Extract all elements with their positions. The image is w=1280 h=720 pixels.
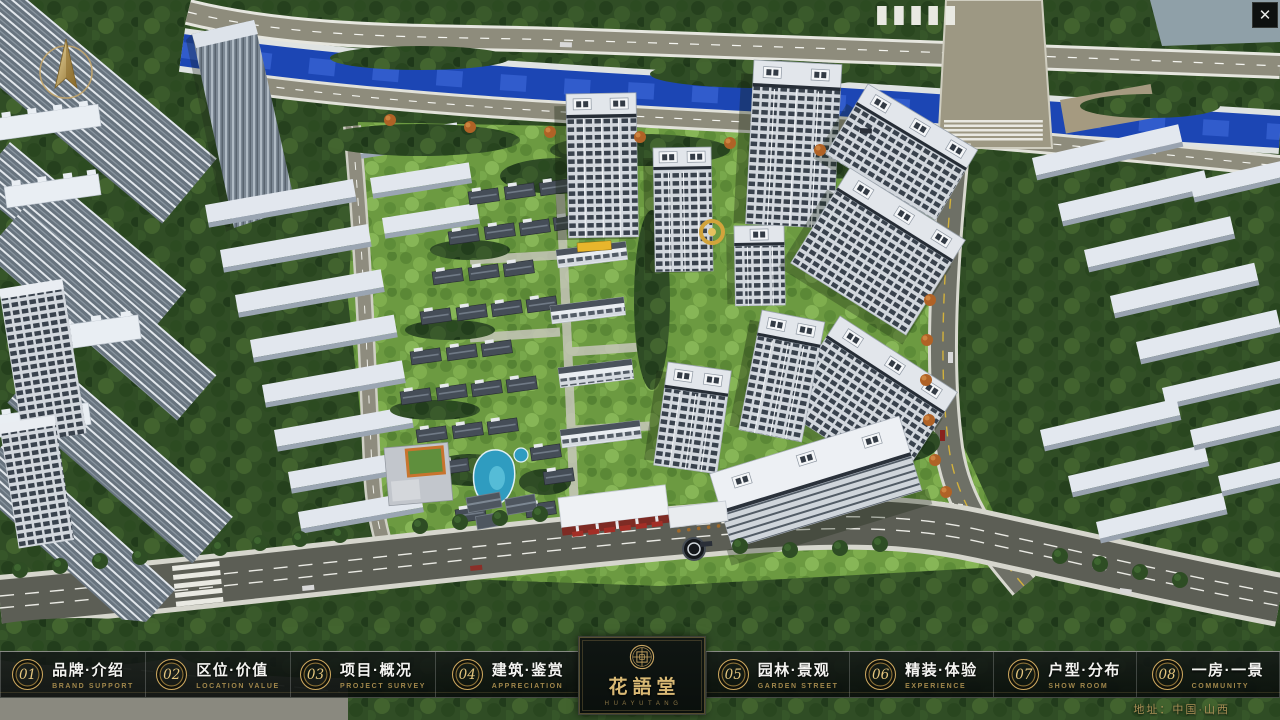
- nav-number-badge: 05: [718, 659, 749, 690]
- nav-number-badge: 06: [865, 659, 896, 690]
- nav-group-right: 05 园林·景观 GARDEN STREET 06 精装·体验 EXPERIEN…: [706, 652, 1280, 697]
- nav-number-badge: 01: [12, 659, 43, 690]
- nav-item-label: 精装·体验: [905, 659, 978, 680]
- project-logo[interactable]: 花語堂 H U A Y U T A N G: [578, 636, 706, 715]
- nav-item-sublabel: SHOW ROOM: [1048, 683, 1108, 690]
- nav-group-left: 01 品牌·介绍 BRAND SUPPORT 02 区位·价值 LOCATION…: [0, 652, 580, 697]
- presentation-window: ✕ 01 品牌·介绍 BRAND SUPPORT 02 区位·价值 LOCATI…: [0, 0, 1280, 720]
- nav-item-sublabel: BRAND SUPPORT: [52, 683, 134, 690]
- nav-item-sublabel: COMMUNITY: [1192, 683, 1250, 690]
- nav-item-label: 园林·景观: [758, 659, 831, 680]
- logo-subtitle: H U A Y U T A N G: [605, 701, 680, 707]
- nav-item-label: 户型·分布: [1048, 659, 1121, 680]
- nav-item-project-survey[interactable]: 03 项目·概况 PROJECT SURVEY: [290, 652, 435, 697]
- nav-item-sublabel: LOCATION VALUE: [196, 683, 280, 690]
- masterplan-render: [0, 0, 1280, 720]
- nav-item-label: 品牌·介绍: [52, 659, 125, 680]
- nav-item-label: 区位·价值: [196, 659, 269, 680]
- nav-item-sublabel: APPRECIATION: [492, 683, 564, 690]
- nav-number-badge: 02: [156, 659, 187, 690]
- nav-item-sublabel: GARDEN STREET: [758, 683, 839, 690]
- logo-title: 花語堂: [603, 672, 680, 699]
- nav-item-interior-experience[interactable]: 06 精装·体验 EXPERIENCE: [849, 652, 992, 697]
- nav-item-room-view[interactable]: 08 一房·一景 COMMUNITY: [1136, 652, 1280, 697]
- nav-item-location-value[interactable]: 02 区位·价值 LOCATION VALUE: [145, 652, 290, 697]
- nav-number-badge: 03: [300, 659, 331, 690]
- close-icon: ✕: [1259, 6, 1272, 24]
- nav-number-badge: 08: [1152, 659, 1183, 690]
- nav-item-architecture[interactable]: 04 建筑·鉴赏 APPRECIATION: [435, 652, 580, 697]
- nav-item-label: 一房·一景: [1192, 659, 1265, 680]
- nav-item-label: 项目·概况: [340, 659, 413, 680]
- nav-number-badge: 04: [452, 659, 483, 690]
- close-button[interactable]: ✕: [1252, 2, 1278, 28]
- nav-item-unit-distribution[interactable]: 07 户型·分布 SHOW ROOM: [993, 652, 1136, 697]
- seal-emblem-icon: [629, 644, 655, 670]
- nav-item-sublabel: EXPERIENCE: [905, 683, 966, 690]
- nav-number-badge: 07: [1008, 659, 1039, 690]
- nav-item-sublabel: PROJECT SURVEY: [340, 683, 426, 690]
- nav-item-garden-landscape[interactable]: 05 园林·景观 GARDEN STREET: [706, 652, 849, 697]
- nav-item-label: 建筑·鉴赏: [492, 659, 565, 680]
- nav-item-brand-intro[interactable]: 01 品牌·介绍 BRAND SUPPORT: [0, 652, 145, 697]
- project-address: 地址：中国·山西: [1133, 701, 1230, 717]
